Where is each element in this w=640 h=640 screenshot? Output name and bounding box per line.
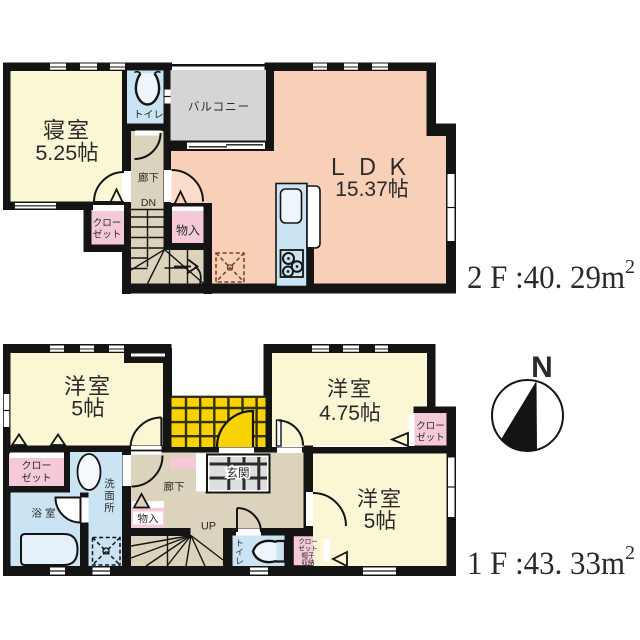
svg-text:物入: 物入 [176, 224, 200, 238]
svg-text:2: 2 [625, 542, 635, 564]
svg-text:寝室: 寝室 [43, 118, 91, 143]
svg-text:物入: 物入 [138, 512, 159, 525]
svg-text:5帖: 5帖 [364, 510, 397, 533]
svg-text:洋室: 洋室 [357, 488, 403, 511]
svg-text:クロー: クロー [93, 218, 122, 229]
svg-text:バルコニー: バルコニー [188, 101, 250, 114]
svg-text:洋室: 洋室 [64, 374, 112, 399]
svg-text:トイレ: トイレ [134, 110, 164, 121]
svg-text:2: 2 [625, 256, 635, 278]
svg-text:クロー: クロー [416, 421, 445, 432]
svg-text:5.25帖: 5.25帖 [35, 141, 98, 165]
svg-text:廊下: 廊下 [138, 171, 159, 184]
svg-text:2 F :40. 29m: 2 F :40. 29m [467, 260, 625, 296]
svg-text:ゼット: ゼット [416, 432, 445, 444]
svg-text:収納: 収納 [302, 558, 315, 567]
svg-text:5帖: 5帖 [71, 397, 104, 421]
svg-text:クロー: クロー [22, 460, 52, 472]
svg-text:クロー: クロー [298, 538, 318, 546]
svg-text:レ: レ [235, 556, 244, 566]
svg-text:N: N [531, 351, 553, 384]
svg-text:ゼット: ゼット [93, 229, 122, 241]
svg-text:ＬＤＫ: ＬＤＫ [326, 154, 416, 180]
svg-text:浴室: 浴室 [32, 507, 59, 520]
svg-text:玄関: 玄関 [227, 466, 250, 480]
svg-text:洗: 洗 [104, 478, 115, 490]
svg-text:ゼット: ゼット [22, 473, 52, 485]
svg-text:廊下: 廊下 [164, 480, 185, 493]
svg-text:15.37帖: 15.37帖 [335, 178, 409, 201]
svg-text:1 F :43. 33m: 1 F :43. 33m [467, 546, 625, 582]
svg-text:4.75帖: 4.75帖 [319, 402, 381, 425]
svg-text:洋室: 洋室 [327, 378, 373, 401]
svg-text:所: 所 [104, 502, 115, 514]
svg-text:ゼット: ゼット [298, 544, 318, 553]
svg-text:帽子: 帽子 [302, 551, 316, 560]
svg-text:面: 面 [104, 490, 115, 502]
svg-text:UP: UP [201, 521, 216, 533]
svg-text:DN: DN [141, 197, 156, 209]
